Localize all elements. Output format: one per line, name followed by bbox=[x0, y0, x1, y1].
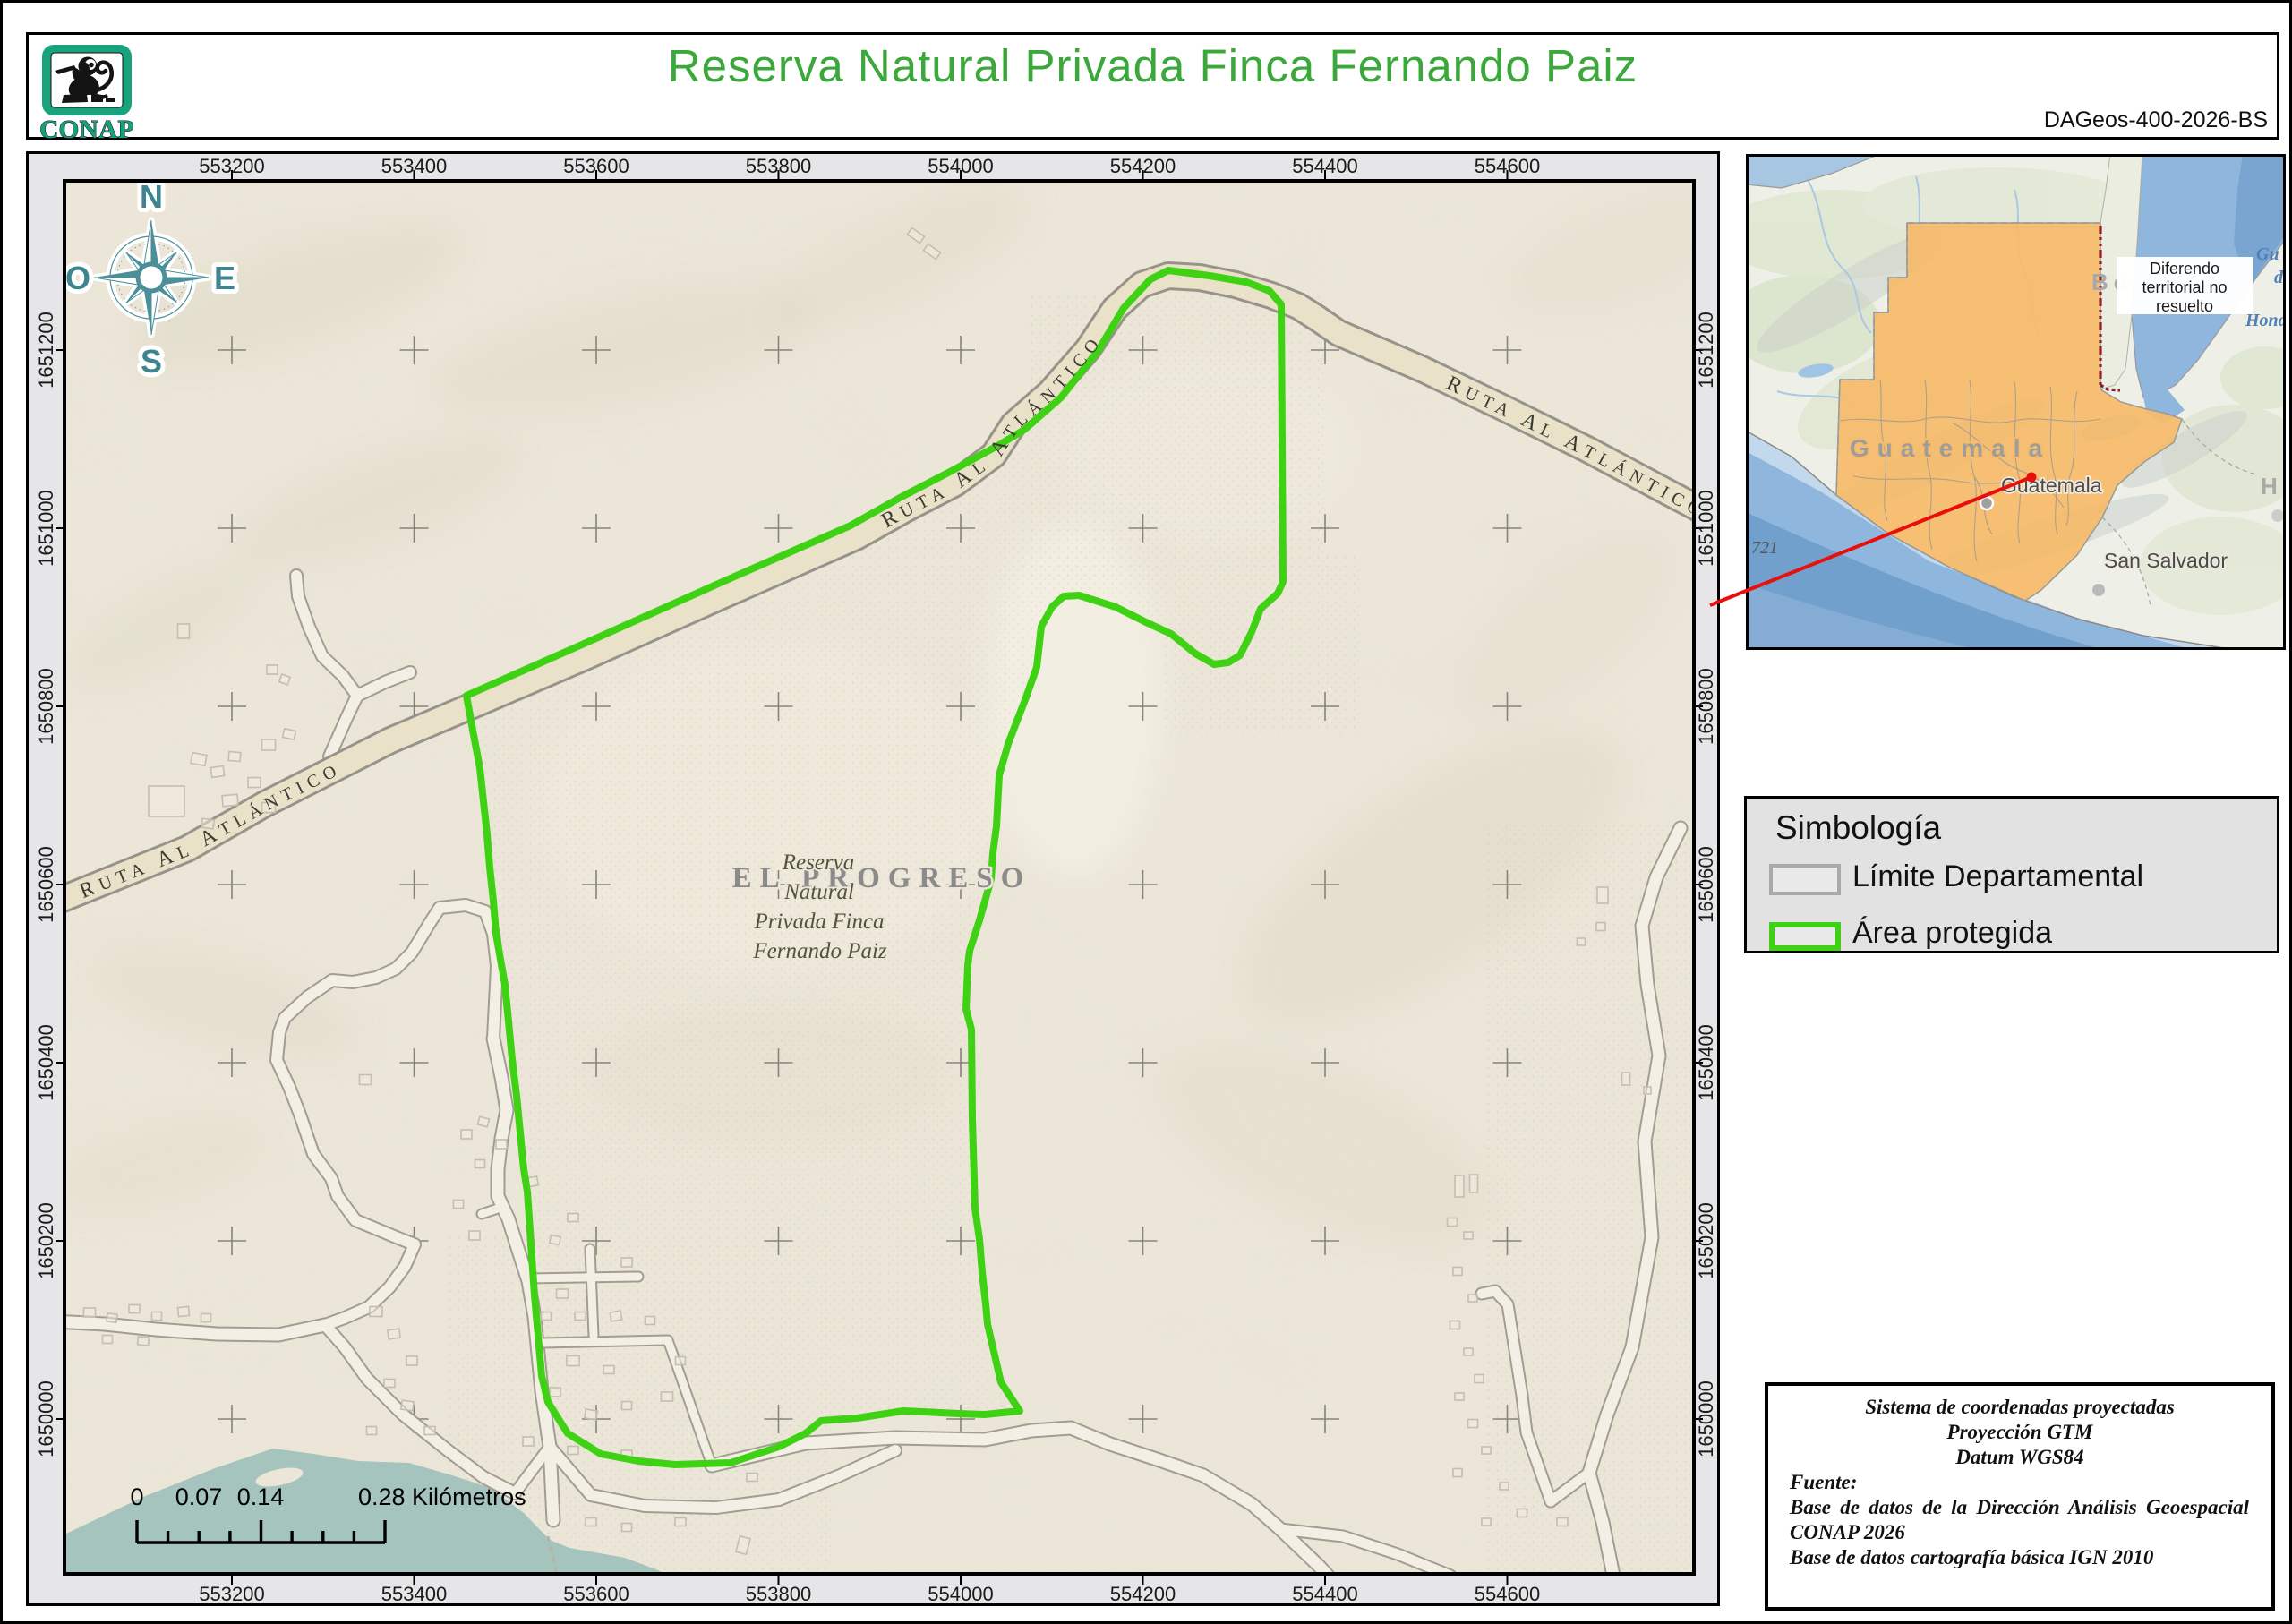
svg-text:1650800: 1650800 bbox=[1695, 668, 1717, 745]
svg-text:554200: 554200 bbox=[1110, 155, 1176, 177]
svg-text:553400: 553400 bbox=[381, 1583, 447, 1605]
svg-text:1651200: 1651200 bbox=[35, 312, 57, 389]
svg-text:1650600: 1650600 bbox=[35, 846, 57, 923]
svg-text:N: N bbox=[140, 178, 163, 215]
svg-text:Gu: Gu bbox=[2256, 244, 2279, 264]
svg-text:territorial no: territorial no bbox=[2142, 278, 2227, 296]
svg-text:553400: 553400 bbox=[381, 155, 447, 177]
svg-text:San Salvador: San Salvador bbox=[2104, 549, 2228, 572]
svg-text:554600: 554600 bbox=[1475, 155, 1540, 177]
svg-text:554400: 554400 bbox=[1292, 155, 1357, 177]
svg-text:Diferendo: Diferendo bbox=[2150, 260, 2219, 278]
svg-text:554400: 554400 bbox=[1292, 1583, 1357, 1605]
svg-text:0.14: 0.14 bbox=[237, 1483, 285, 1510]
svg-text:0.28 Kilómetros: 0.28 Kilómetros bbox=[358, 1483, 526, 1510]
svg-text:0: 0 bbox=[130, 1483, 143, 1510]
svg-text:1650000: 1650000 bbox=[35, 1380, 57, 1457]
svg-text:553200: 553200 bbox=[199, 155, 264, 177]
svg-text:554600: 554600 bbox=[1475, 1583, 1540, 1605]
svg-text:E: E bbox=[214, 260, 235, 296]
svg-text:553600: 553600 bbox=[563, 155, 629, 177]
svg-text:Privada Finca: Privada Finca bbox=[753, 910, 884, 934]
svg-text:553800: 553800 bbox=[746, 1583, 811, 1605]
svg-text:S: S bbox=[141, 343, 162, 380]
svg-text:1650200: 1650200 bbox=[1695, 1202, 1717, 1279]
svg-text:554000: 554000 bbox=[928, 155, 993, 177]
svg-text:1650000: 1650000 bbox=[1695, 1380, 1717, 1457]
svg-text:resuelto: resuelto bbox=[2156, 297, 2213, 315]
svg-text:d: d bbox=[2274, 268, 2284, 287]
svg-text:CONAP: CONAP bbox=[39, 115, 134, 144]
svg-text:Fernando Paiz: Fernando Paiz bbox=[752, 939, 887, 963]
svg-text:Natural: Natural bbox=[783, 880, 854, 904]
svg-text:721: 721 bbox=[1751, 538, 1778, 558]
svg-text:1651000: 1651000 bbox=[1695, 490, 1717, 567]
svg-text:Ho: Ho bbox=[2261, 473, 2286, 500]
svg-text:1651200: 1651200 bbox=[1695, 312, 1717, 389]
svg-text:1650600: 1650600 bbox=[1695, 846, 1717, 923]
svg-text:O: O bbox=[65, 260, 90, 296]
svg-text:0.07: 0.07 bbox=[175, 1483, 223, 1510]
svg-text:554200: 554200 bbox=[1110, 1583, 1176, 1605]
svg-text:1650400: 1650400 bbox=[1695, 1024, 1717, 1101]
svg-text:1650200: 1650200 bbox=[35, 1202, 57, 1279]
svg-text:Reserva: Reserva bbox=[782, 850, 855, 875]
svg-text:Guatemala: Guatemala bbox=[1850, 434, 2050, 462]
svg-text:553800: 553800 bbox=[746, 155, 811, 177]
svg-text:554000: 554000 bbox=[928, 1583, 993, 1605]
svg-text:1650800: 1650800 bbox=[35, 668, 57, 745]
svg-text:EL PROGRESO: EL PROGRESO bbox=[732, 862, 1032, 894]
svg-text:1651000: 1651000 bbox=[35, 490, 57, 567]
svg-text:553600: 553600 bbox=[563, 1583, 629, 1605]
svg-text:1650400: 1650400 bbox=[35, 1024, 57, 1101]
svg-text:553200: 553200 bbox=[199, 1583, 264, 1605]
svg-text:Guatemala: Guatemala bbox=[2001, 474, 2102, 497]
